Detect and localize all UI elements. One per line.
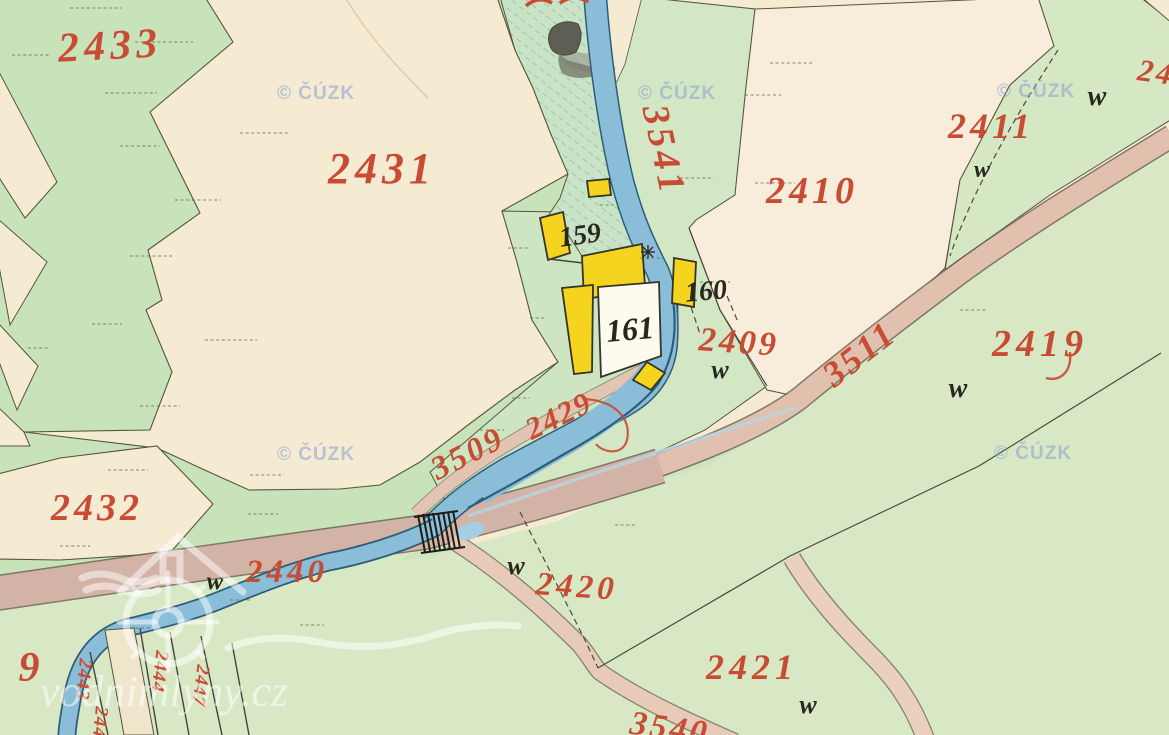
svg-text:2431: 2431 xyxy=(327,144,436,193)
svg-text:© ČÚZK: © ČÚZK xyxy=(997,80,1075,102)
svg-text:9: 9 xyxy=(19,645,40,691)
svg-text:24: 24 xyxy=(1135,52,1169,92)
svg-text:w: w xyxy=(799,690,817,719)
svg-text:© ČÚZK: © ČÚZK xyxy=(277,82,355,104)
svg-text:w: w xyxy=(711,355,729,384)
svg-text:159: 159 xyxy=(557,217,603,254)
svg-text:w: w xyxy=(949,373,968,404)
svg-text:w: w xyxy=(1088,81,1107,112)
svg-text:161: 161 xyxy=(604,309,655,349)
svg-text:2421: 2421 xyxy=(705,647,798,687)
svg-text:© ČÚZK: © ČÚZK xyxy=(994,442,1072,464)
svg-text:2420: 2420 xyxy=(534,566,619,608)
svg-text:2410: 2410 xyxy=(765,170,858,212)
svg-text:w: w xyxy=(974,157,991,183)
svg-text:2411: 2411 xyxy=(947,106,1034,146)
svg-text:2440: 2440 xyxy=(245,554,328,590)
svg-text:© ČÚZK: © ČÚZK xyxy=(638,82,716,104)
svg-text:2432: 2432 xyxy=(50,487,143,529)
svg-text:2409: 2409 xyxy=(697,321,780,364)
svg-text:160: 160 xyxy=(684,274,729,309)
svg-text:2433: 2433 xyxy=(56,20,163,71)
svg-text:w: w xyxy=(507,551,525,580)
svg-text:2419: 2419 xyxy=(991,323,1088,365)
svg-text:© ČÚZK: © ČÚZK xyxy=(277,443,355,465)
svg-text:vodnimlyny.cz: vodnimlyny.cz xyxy=(40,667,288,716)
